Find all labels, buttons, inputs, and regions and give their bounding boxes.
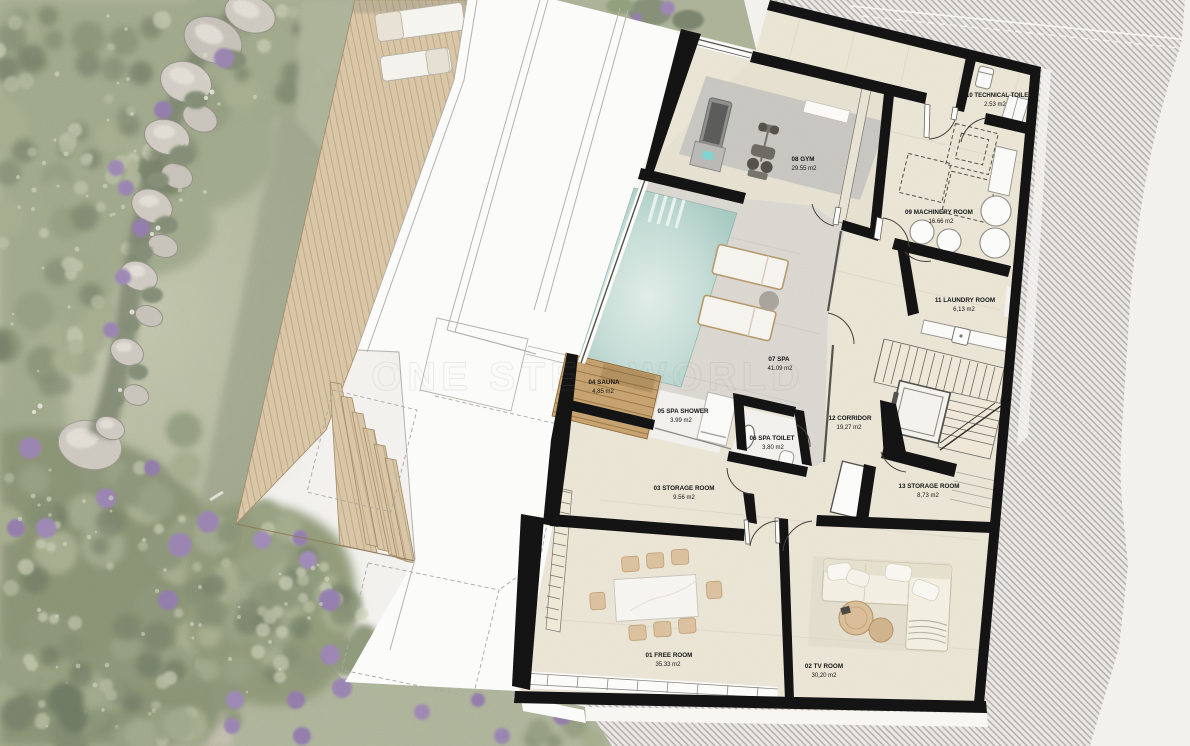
svg-text:11 LAUNDRY ROOM: 11 LAUNDRY ROOM: [935, 297, 995, 304]
svg-text:6,13 m2: 6,13 m2: [953, 307, 975, 313]
svg-text:06 SPA TOILET: 06 SPA TOILET: [749, 435, 794, 442]
svg-text:30,20 m2: 30,20 m2: [811, 673, 837, 679]
svg-text:8,73 m2: 8,73 m2: [917, 493, 939, 499]
svg-text:16.66 m2: 16.66 m2: [928, 219, 954, 225]
svg-text:ONE STEP WORLD: ONE STEP WORLD: [371, 355, 805, 399]
svg-text:3.80 m2: 3.80 m2: [762, 445, 784, 451]
svg-text:9.56 m2: 9.56 m2: [673, 495, 695, 501]
svg-text:02 TV ROOM: 02 TV ROOM: [805, 663, 843, 670]
svg-text:03 STORAGE ROOM: 03 STORAGE ROOM: [653, 485, 714, 492]
svg-text:08 GYM: 08 GYM: [791, 156, 814, 163]
svg-text:19,27 m2: 19,27 m2: [836, 425, 862, 431]
svg-text:09 MACHINERY ROOM: 09 MACHINERY ROOM: [905, 209, 973, 216]
svg-text:05 SPA SHOWER: 05 SPA SHOWER: [657, 408, 709, 415]
svg-text:29.55 m2: 29.55 m2: [791, 166, 817, 172]
svg-text:13 STORAGE ROOM: 13 STORAGE ROOM: [898, 483, 959, 490]
svg-text:12 CORRIDOR: 12 CORRIDOR: [828, 415, 871, 422]
svg-text:2.53 m2: 2.53 m2: [984, 102, 1006, 108]
svg-text:01 FREE ROOM: 01 FREE ROOM: [646, 652, 693, 659]
svg-text:10 TECHNICAL TOILET: 10 TECHNICAL TOILET: [966, 93, 1032, 99]
svg-text:35.33 m2: 35.33 m2: [655, 662, 681, 668]
svg-text:3.99 m2: 3.99 m2: [670, 418, 692, 424]
